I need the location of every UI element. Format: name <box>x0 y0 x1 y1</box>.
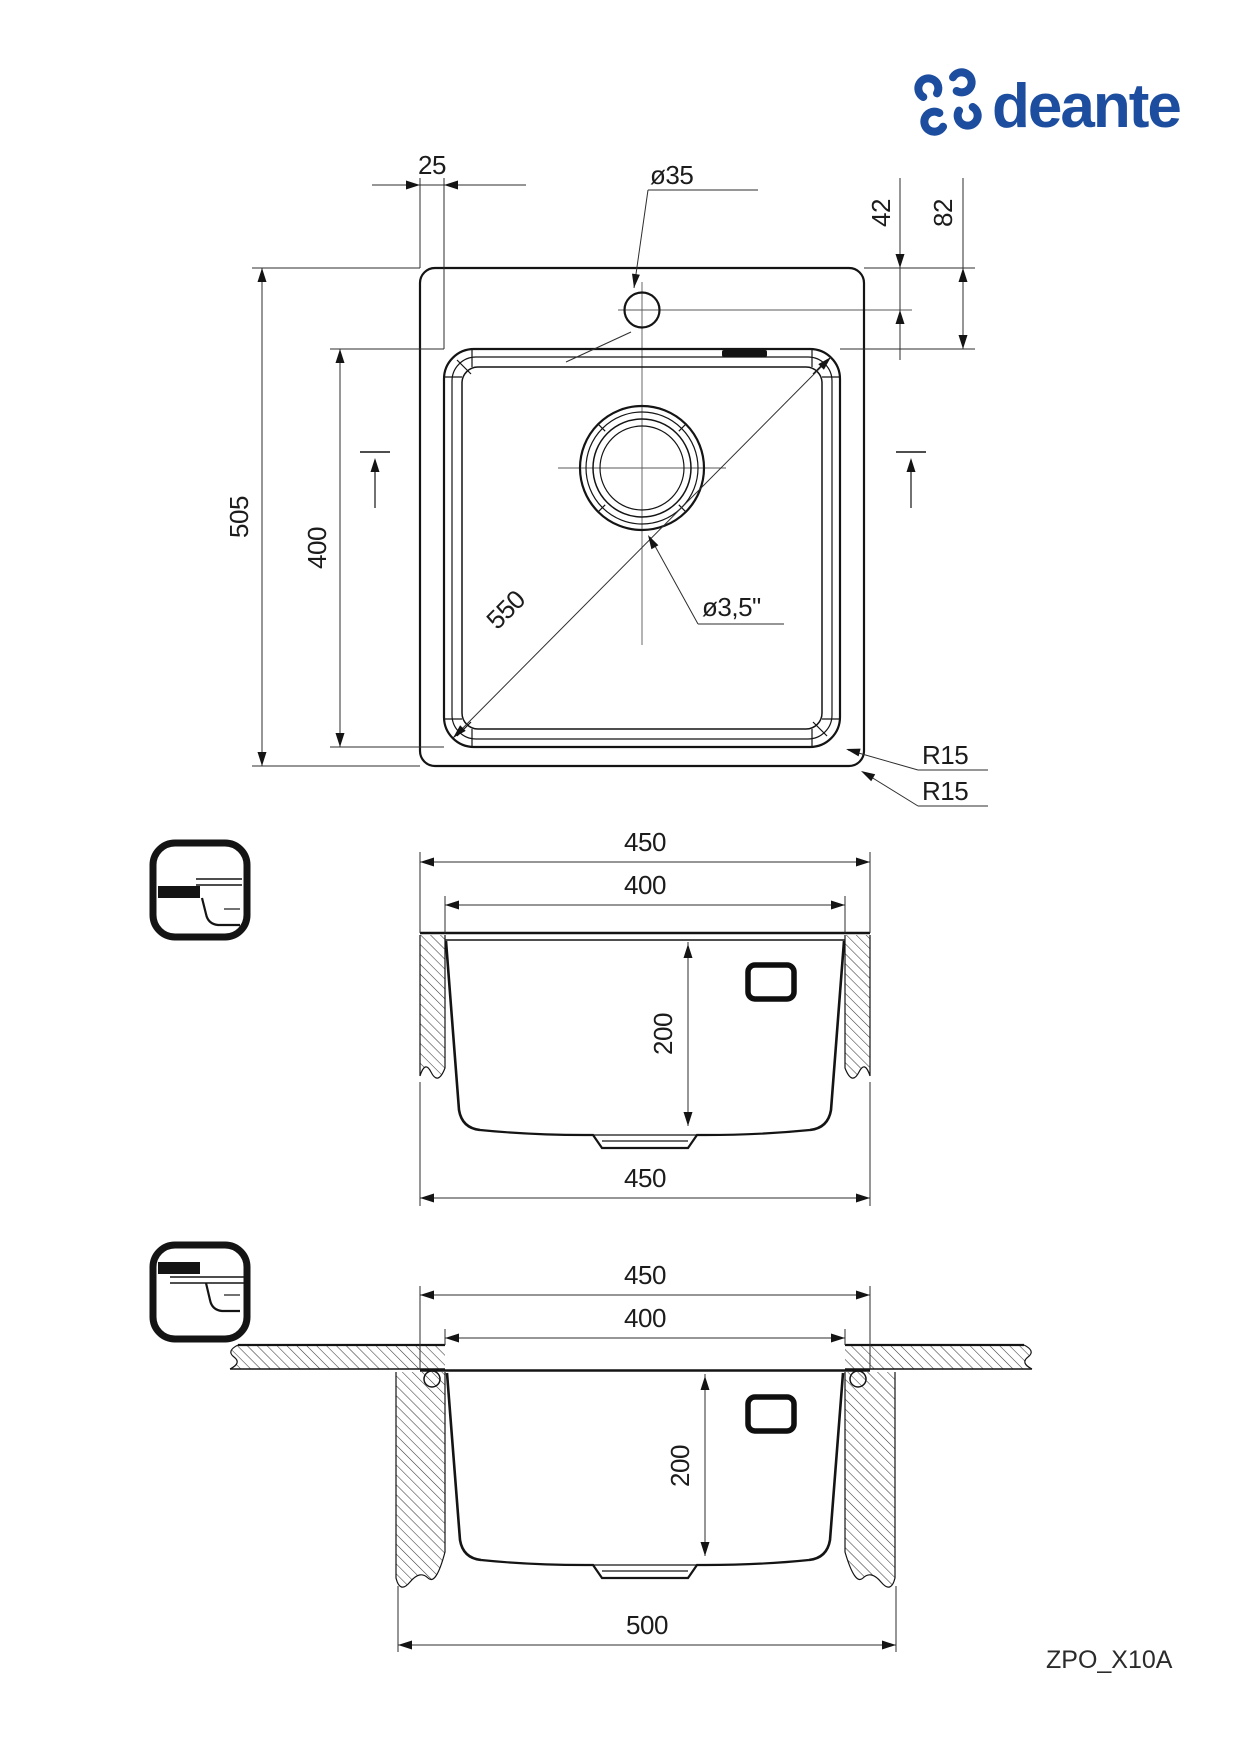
dim-inset-bowl-width: 400 <box>624 870 666 900</box>
dim-inset-overall-width: 450 <box>624 827 666 857</box>
dim-under-cutout-width: 500 <box>626 1610 668 1640</box>
dim-bowl-corner-radius: R15 <box>922 740 968 770</box>
dim-bowl-depth: 400 <box>302 527 332 569</box>
dim-outer-corner-radius: R15 <box>922 776 968 806</box>
dim-under-overall-width: 450 <box>624 1260 666 1290</box>
technical-drawing-canvas: deante <box>0 0 1241 1754</box>
overflow-opening <box>748 1397 794 1431</box>
product-code: ZPO_X10A <box>1046 1646 1173 1674</box>
technical-drawing-page: deante <box>0 0 1241 1754</box>
dim-bowl-from-edge: 82 <box>928 199 958 227</box>
dim-under-bowl-height: 200 <box>665 1445 695 1487</box>
brand-logo-icon <box>918 72 977 131</box>
overflow-slot <box>722 350 767 357</box>
dim-faucet-hole-diameter: ø35 <box>650 160 693 190</box>
brand-logo: deante <box>918 72 1180 141</box>
inset-mount-icon <box>153 843 247 937</box>
dim-inset-bowl-height: 200 <box>648 1013 678 1055</box>
dim-hole-from-edge: 42 <box>866 199 896 227</box>
clip-mark-right <box>896 452 926 508</box>
brand-name: deante <box>992 72 1180 141</box>
dim-inset-bottom-width: 450 <box>624 1163 666 1193</box>
dim-drain-diameter: ø3,5" <box>702 592 761 622</box>
top-view: 25 505 400 42 82 550 ø35 ø3,5" <box>224 150 988 806</box>
undermount-icon <box>153 1245 247 1339</box>
section-view-inset: 450 400 200 450 <box>420 827 870 1206</box>
dim-edge-to-bowl: 25 <box>418 150 446 180</box>
overflow-opening <box>748 965 794 999</box>
clip-mark-left <box>360 452 390 508</box>
dim-overall-depth: 505 <box>224 496 254 538</box>
dim-bowl-diagonal: 550 <box>480 584 531 635</box>
dim-under-bowl-width: 400 <box>624 1303 666 1333</box>
section-view-undermount: 450 400 200 500 <box>230 1260 1032 1652</box>
